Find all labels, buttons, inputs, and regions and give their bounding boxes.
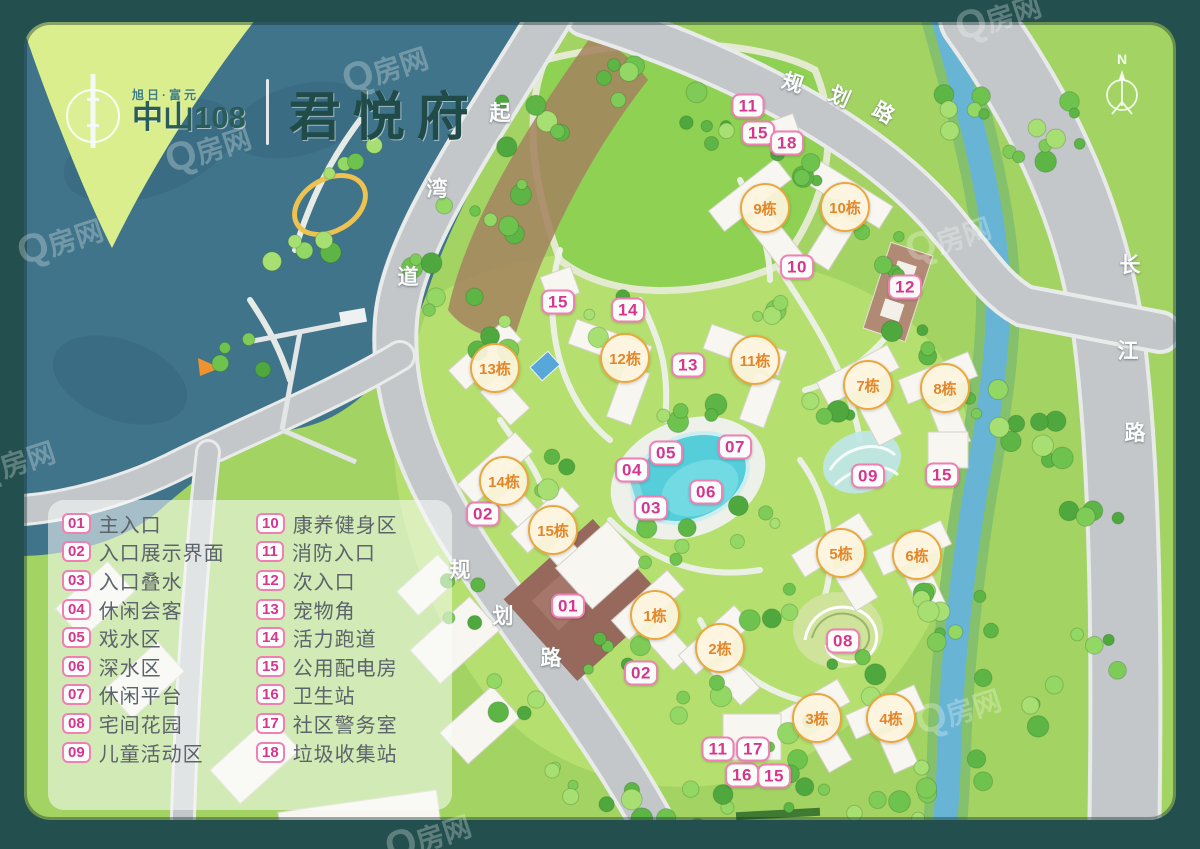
tree [466, 288, 483, 305]
tree [971, 408, 981, 418]
tree [1031, 413, 1049, 431]
tree [881, 321, 902, 342]
tree [219, 342, 230, 353]
tree [487, 674, 502, 689]
tree [865, 664, 886, 685]
tree [1103, 634, 1114, 645]
tree [1052, 447, 1074, 469]
tree [771, 147, 785, 161]
tree [608, 59, 621, 72]
tree [770, 518, 780, 528]
tree [1013, 151, 1025, 163]
tree [984, 623, 999, 638]
tree [616, 290, 630, 304]
tree [855, 649, 871, 665]
tree [468, 615, 482, 629]
tree [470, 206, 481, 217]
tree [967, 750, 985, 768]
tree [366, 137, 382, 153]
tree [639, 556, 652, 569]
tree [682, 781, 698, 797]
tree [802, 713, 816, 727]
tree [670, 553, 682, 565]
tree [777, 722, 799, 744]
tree [497, 137, 517, 157]
tree [680, 116, 693, 129]
tree [917, 325, 928, 336]
tree [499, 216, 519, 236]
tree [762, 609, 781, 628]
tree [1022, 697, 1039, 714]
tree [315, 231, 332, 248]
tree [584, 309, 595, 320]
tree [1008, 415, 1025, 432]
tree [673, 403, 688, 418]
tree [537, 479, 558, 500]
tree [670, 707, 687, 724]
tree [1069, 108, 1079, 118]
tree [630, 636, 650, 656]
tree [764, 742, 774, 752]
tree [705, 408, 718, 421]
tree [927, 633, 946, 652]
site-plan-poster: { "brand": { "tagline": "旭日·富元", "name":… [0, 0, 1200, 849]
tree [212, 355, 229, 372]
tree [481, 327, 500, 346]
tree [783, 583, 795, 595]
tree [869, 791, 886, 808]
tree [730, 534, 744, 548]
tree [1027, 716, 1048, 737]
tree [611, 93, 626, 108]
tree [1085, 636, 1103, 654]
tree [495, 95, 508, 108]
tree [728, 496, 748, 516]
tree [796, 778, 814, 796]
tree [675, 539, 689, 553]
tree [1045, 676, 1063, 694]
tree [1076, 507, 1095, 526]
tree [979, 109, 990, 120]
tree [471, 578, 485, 592]
tree [914, 760, 929, 775]
tree [1071, 628, 1084, 641]
tree [593, 632, 606, 645]
tree [288, 235, 301, 248]
tree [948, 625, 963, 640]
tree [1046, 129, 1065, 148]
tree [773, 295, 788, 310]
tree [497, 339, 519, 361]
tree [423, 304, 436, 317]
tree [347, 153, 363, 169]
tree [739, 610, 760, 631]
tree [781, 765, 799, 783]
tree [619, 62, 638, 81]
tree [759, 506, 773, 520]
tree [918, 601, 939, 622]
tree [940, 101, 957, 118]
tree [974, 669, 992, 687]
tree [551, 124, 565, 138]
tree [621, 789, 642, 810]
tree [802, 393, 819, 410]
tree [262, 252, 281, 271]
tree [440, 573, 455, 588]
tree [704, 136, 718, 150]
tree [242, 333, 255, 346]
tree [324, 168, 336, 180]
tree [827, 659, 838, 670]
tree [1035, 151, 1057, 173]
tree [621, 658, 634, 671]
tree [894, 231, 905, 242]
tree [989, 417, 1009, 437]
tree [563, 788, 579, 804]
tree [974, 590, 986, 602]
tree [677, 691, 690, 704]
tree [818, 784, 829, 795]
tree [526, 95, 546, 115]
tree [854, 224, 869, 239]
building-footprint [928, 432, 968, 468]
tree [1032, 435, 1053, 456]
tree [559, 459, 575, 475]
tree [784, 802, 794, 812]
tree [421, 253, 442, 274]
tree [709, 675, 724, 690]
tree [517, 706, 531, 720]
tree [583, 664, 593, 674]
tree [719, 123, 735, 139]
tree [713, 785, 733, 805]
tree [410, 254, 422, 266]
tree [921, 342, 935, 356]
tree [753, 311, 763, 321]
tree [544, 449, 559, 464]
building-footprint [723, 714, 781, 760]
tree [443, 612, 455, 624]
tree [1074, 138, 1085, 149]
tree [802, 154, 820, 172]
tree [816, 408, 832, 424]
tree [484, 213, 497, 226]
tree [255, 362, 271, 378]
tree [686, 82, 707, 103]
tree [916, 778, 936, 798]
tree [517, 179, 527, 189]
tree [1112, 512, 1124, 524]
tree [889, 791, 911, 813]
tree [657, 409, 670, 422]
tree [436, 197, 453, 214]
tree [528, 691, 545, 708]
tree [596, 70, 611, 85]
tree [874, 256, 892, 274]
tree [545, 763, 560, 778]
tree [964, 392, 976, 404]
tree [827, 199, 844, 216]
tree [974, 772, 993, 791]
tree [1109, 661, 1127, 679]
tree [861, 687, 880, 706]
tree [988, 380, 1008, 400]
tree [588, 327, 608, 347]
tree [488, 702, 509, 723]
tree [637, 518, 657, 538]
tree [599, 797, 614, 812]
tree [1028, 119, 1046, 137]
tree [701, 120, 712, 131]
masterplan-illustration [0, 0, 1200, 849]
tree [678, 519, 696, 537]
tree [781, 604, 798, 621]
tree [941, 121, 960, 140]
tree [892, 269, 904, 281]
tree [499, 315, 511, 327]
